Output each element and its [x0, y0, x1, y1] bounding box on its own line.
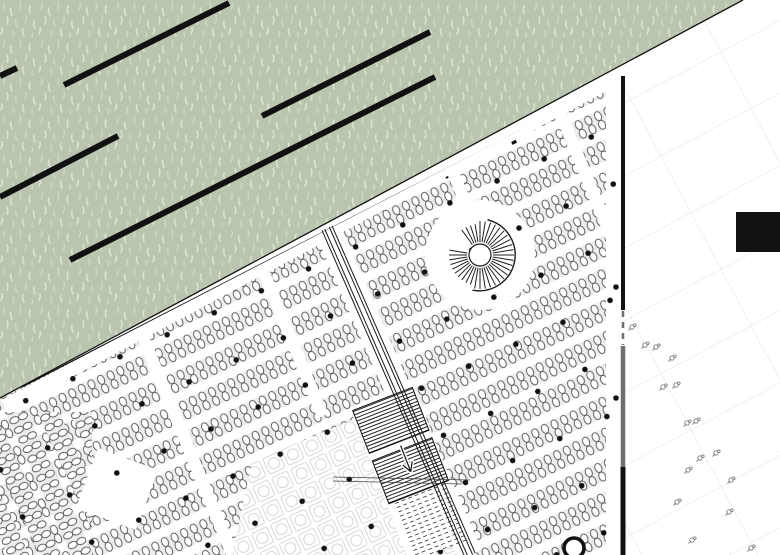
- wall-dot: [613, 284, 619, 290]
- plan-details: [564, 538, 584, 555]
- wall-dot: [613, 395, 619, 401]
- annex-grid-area: [620, 0, 780, 555]
- black-marker-rect: [736, 212, 780, 252]
- site-plan: [0, 0, 780, 555]
- sunburst-hub: [469, 244, 491, 266]
- annex-faint-grid: [620, 0, 780, 555]
- column-circle: [564, 538, 584, 555]
- site-plan-drawing: [0, 0, 780, 555]
